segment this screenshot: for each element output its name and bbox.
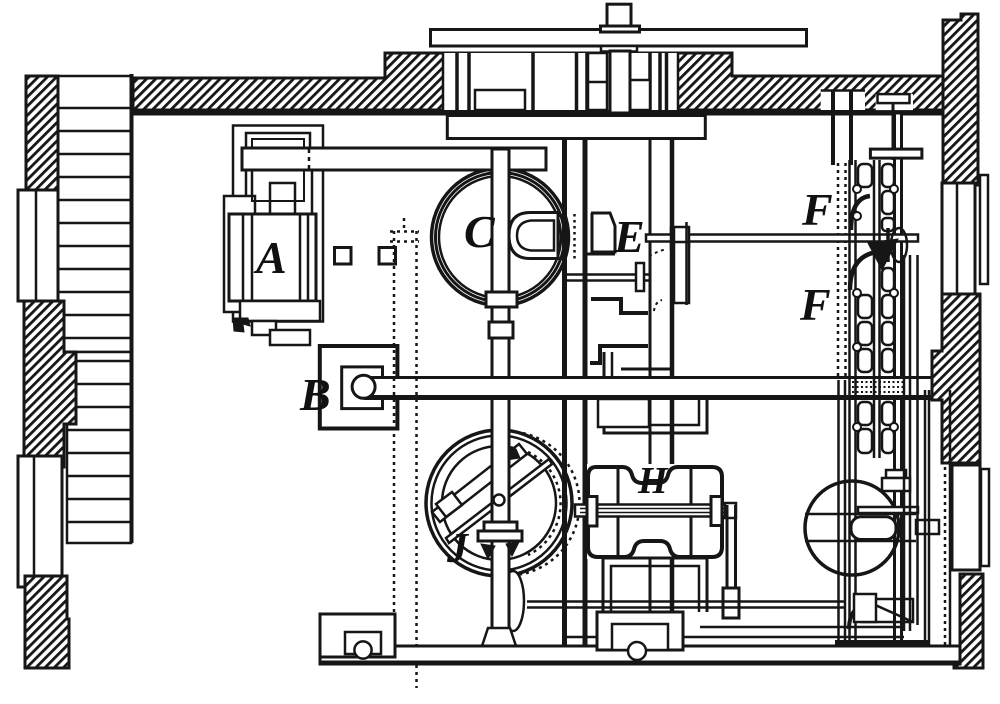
svg-text:A: A [253,232,287,283]
svg-text:C: C [464,206,496,257]
svg-text:B: B [299,369,331,420]
svg-text:J: J [446,526,470,572]
svg-text:F: F [799,279,831,330]
svg-text:E: E [613,211,645,262]
svg-text:F: F [801,184,833,235]
svg-text:H: H [637,460,669,502]
